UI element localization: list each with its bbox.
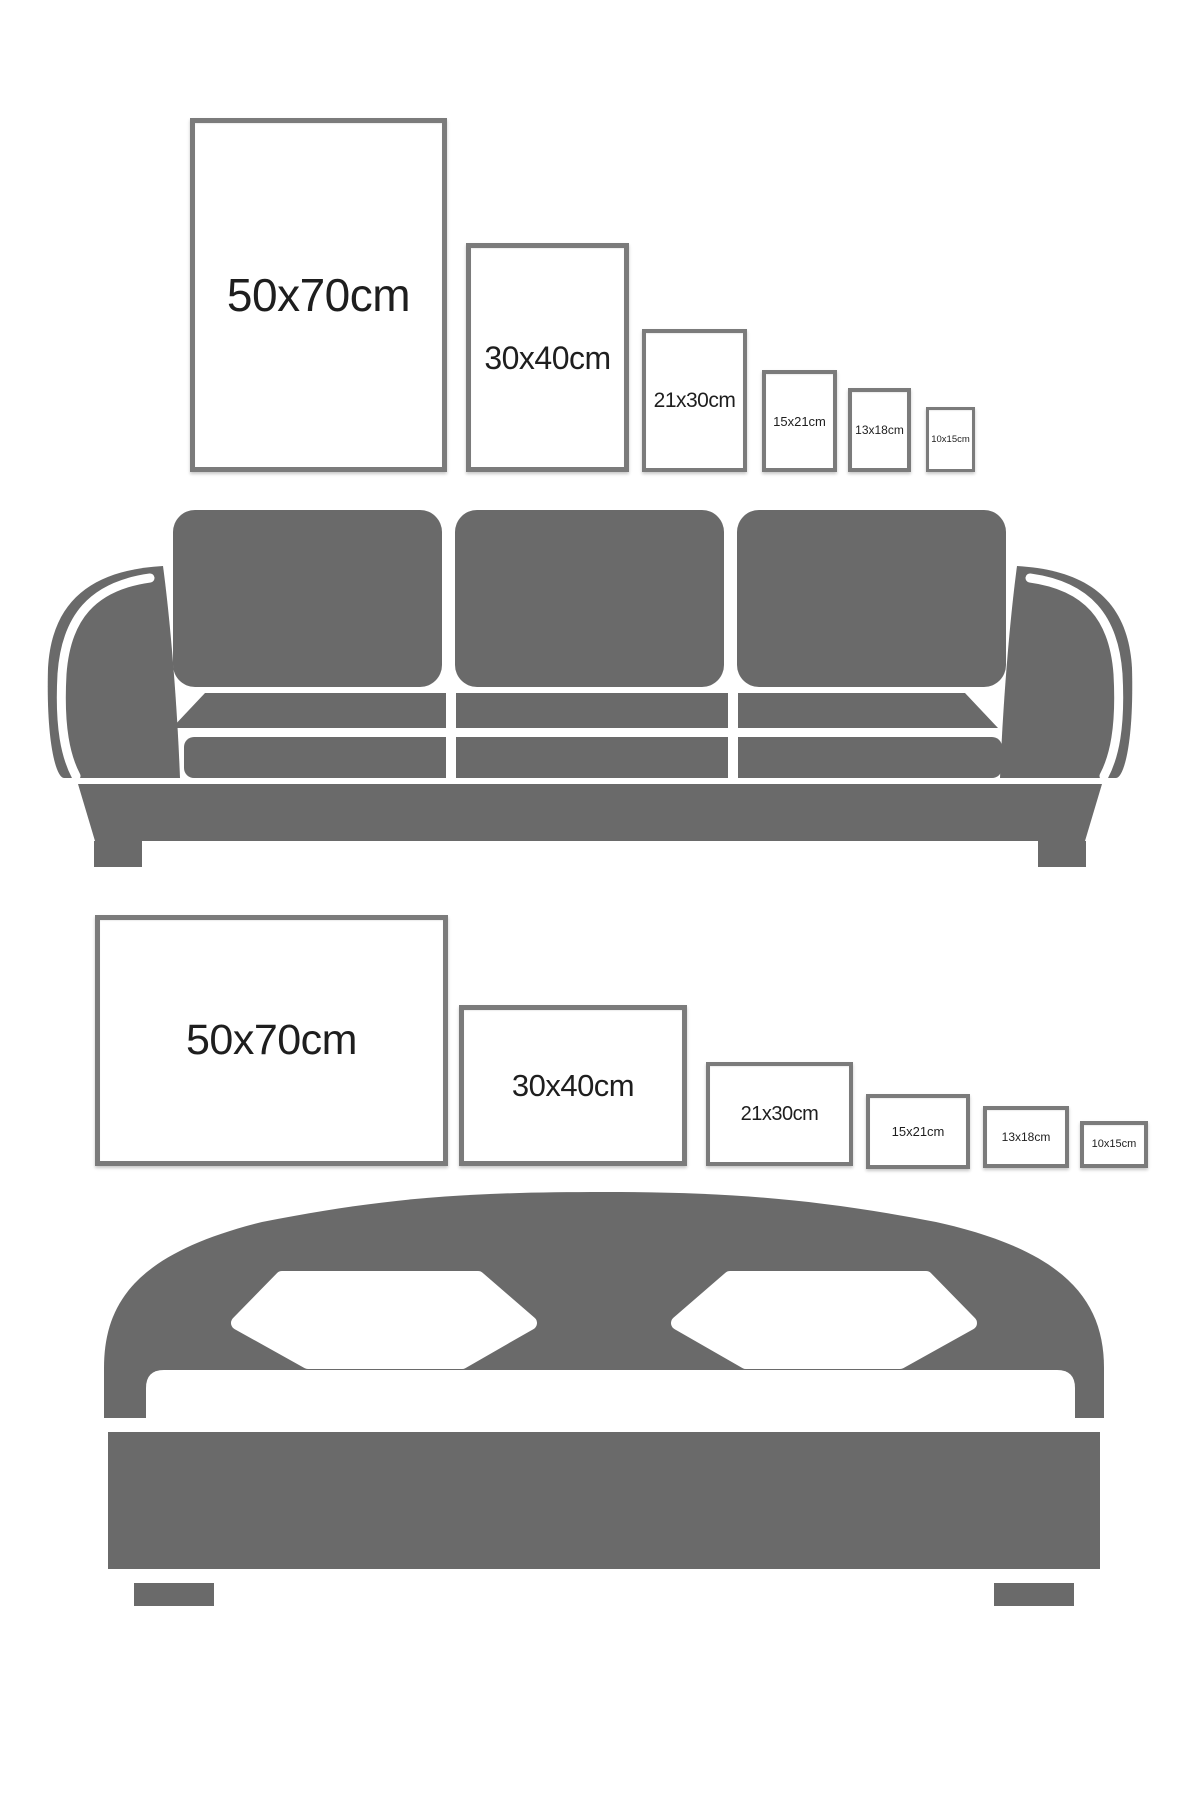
poster-size-label: 30x40cm [484, 342, 610, 374]
poster-size-label: 50x70cm [227, 272, 410, 318]
poster-size-label: 15x21cm [892, 1125, 945, 1138]
poster-size-label: 30x40cm [512, 1070, 634, 1101]
poster-size-label: 10x15cm [1092, 1139, 1137, 1150]
frame-portrait-50x70: 50x70cm [190, 118, 447, 472]
poster-size-label: 13x18cm [1002, 1131, 1051, 1143]
poster-size-label: 15x21cm [773, 415, 826, 428]
size-guide-infographic: 50x70cm 30x40cm 21x30cm 15x21cm 13x18cm … [0, 0, 1200, 1800]
poster-size-label: 50x70cm [186, 1019, 357, 1062]
poster-size-label: 13x18cm [855, 424, 904, 436]
frame-portrait-30x40: 30x40cm [466, 243, 629, 472]
frame-landscape-30x40: 30x40cm [459, 1005, 687, 1166]
poster-size-label: 21x30cm [741, 1104, 819, 1124]
frame-landscape-50x70: 50x70cm [95, 915, 448, 1166]
poster-size-label: 21x30cm [654, 390, 736, 411]
sofa-silhouette-icon [0, 440, 1200, 890]
bed-silhouette-icon [0, 1150, 1200, 1650]
